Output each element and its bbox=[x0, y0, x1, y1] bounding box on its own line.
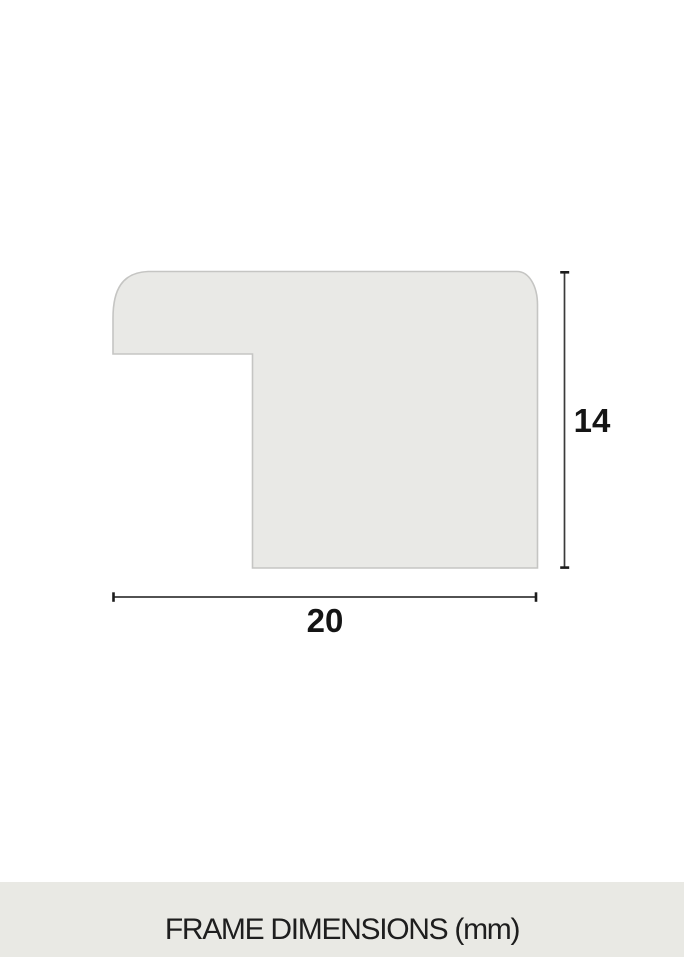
svg-text:14: 14 bbox=[574, 402, 611, 439]
svg-text:20: 20 bbox=[307, 602, 344, 639]
